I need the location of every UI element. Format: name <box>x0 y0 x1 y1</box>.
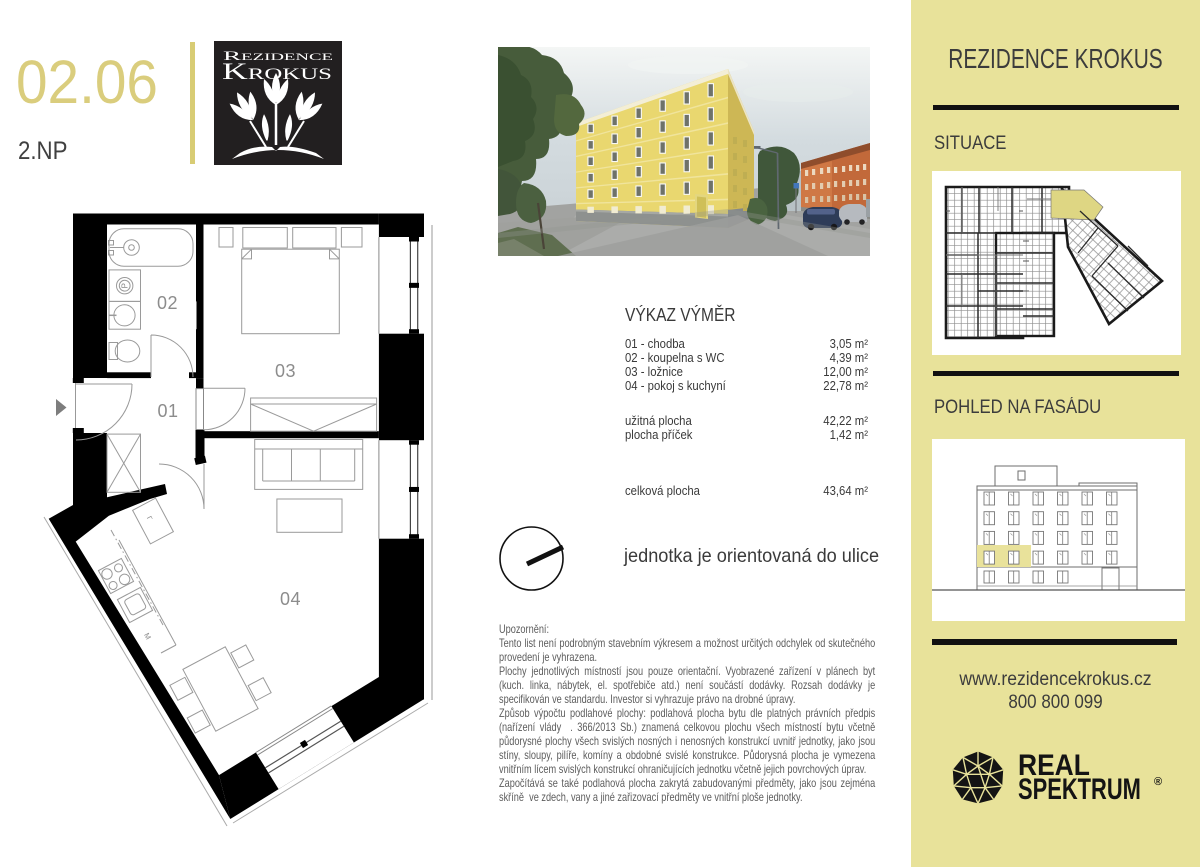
svg-text:M: M <box>142 631 153 641</box>
svg-text:01: 01 <box>158 401 179 421</box>
svg-text:P: P <box>120 283 129 288</box>
svg-text:02: 02 <box>157 293 178 313</box>
svg-text:04: 04 <box>280 589 301 609</box>
svg-text:03: 03 <box>275 361 296 381</box>
svg-text:Γ: Γ <box>145 515 153 522</box>
